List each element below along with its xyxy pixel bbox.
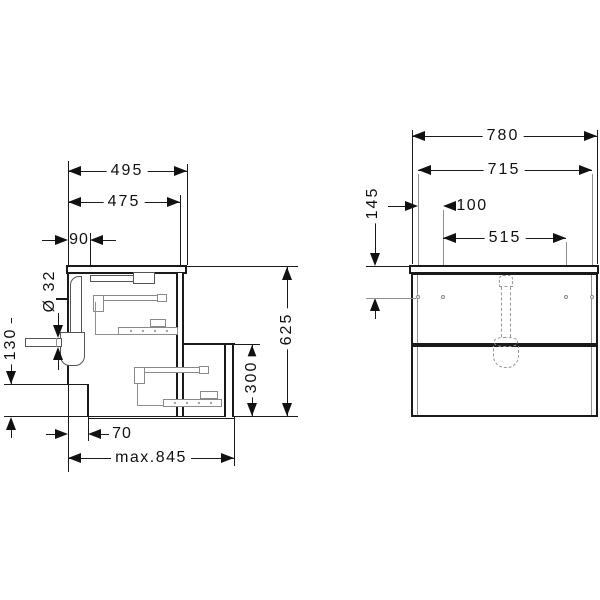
dim-100-label: 100 [456, 197, 487, 215]
mount-hole [564, 295, 568, 299]
dim-300-label: 300 [243, 357, 261, 398]
lower-drawer-bottom-rail [163, 399, 222, 407]
upper-drawer-bottom-rail [118, 327, 178, 335]
mount-hole [590, 295, 594, 299]
ext-line-145-bottom [366, 298, 416, 299]
ext-line-475-right [180, 195, 181, 265]
dim-arrow [412, 131, 425, 141]
dim-100-tail-left [388, 206, 405, 207]
dim-715-label: 715 [484, 161, 525, 179]
dim-90-tail-left [42, 240, 56, 241]
dim-32-label: Ø 32 [41, 270, 59, 313]
dim-arrow [370, 298, 380, 311]
upper-drawer-rail-end [157, 294, 167, 302]
dim-90-tail-right [103, 240, 116, 241]
dim-130-label: 130 [2, 324, 20, 365]
upper-drawer-bracket [150, 319, 166, 327]
dim-arrow [221, 453, 234, 463]
dim-arrow [88, 429, 101, 439]
siphon-cup-dashed [493, 346, 519, 368]
technical-drawing: 495 475 90 Ø 32 130 625 300 70 max.845 [0, 0, 600, 600]
siphon-pipe-dashed [501, 287, 511, 337]
dim-arrow [90, 235, 103, 245]
dim-70-label: 70 [112, 425, 132, 443]
dim-475-label: 475 [104, 193, 145, 211]
dim-32-tail-bottom [58, 360, 59, 370]
drain-outlet-joint [56, 338, 57, 347]
dim-arrow [6, 371, 16, 384]
lower-drawer-bracket [200, 391, 218, 399]
dim-arrow [174, 166, 187, 176]
side-front-panel [176, 273, 184, 417]
dim-130-tail-bottom [11, 430, 12, 438]
dim-arrow [6, 417, 16, 430]
dim-arrow [68, 453, 81, 463]
lower-drawer-rail-cap [134, 367, 145, 384]
dim-145-tail-bottom [375, 311, 376, 319]
mount-hole [441, 295, 445, 299]
dim-arrow [405, 201, 418, 211]
dim-arrow [55, 429, 68, 439]
cabinet-bottom-line [88, 418, 235, 419]
dim-arrow [553, 233, 566, 243]
dim-arrow [584, 131, 597, 141]
ext-line-780-right [597, 130, 598, 264]
dim-arrow [418, 165, 431, 175]
dim-arrow [55, 235, 68, 245]
ext-line-145-top [366, 266, 411, 267]
recess-side-line [87, 384, 89, 417]
dim-70-tail-right [101, 434, 109, 435]
dim-arrow [443, 201, 456, 211]
drain-flange [133, 272, 155, 284]
side-back-panel [67, 273, 69, 385]
dim-780-label: 780 [483, 127, 524, 145]
dim-arrow [282, 403, 292, 416]
lower-drawer-rail [134, 367, 208, 373]
dim-arrow [53, 325, 63, 338]
dim-arrow [53, 347, 63, 360]
lower-drawer-back [137, 383, 138, 405]
siphon-flange-dashed [499, 275, 513, 287]
dim-arrow [282, 267, 292, 280]
drain-horizontal-pipe [90, 275, 134, 282]
dim-32-tail-top [58, 313, 59, 325]
ext-line-845-right [234, 417, 235, 466]
ext-line-780-left [412, 130, 413, 264]
ext-line-495-right [187, 164, 188, 265]
dim-495-label: 495 [107, 162, 148, 180]
mount-hole [416, 295, 420, 299]
dim-arrow [68, 197, 81, 207]
dim-arrow [247, 403, 257, 416]
dim-625-label: 625 [278, 309, 296, 350]
dim-145-label: 145 [364, 183, 382, 224]
dim-arrow [579, 165, 592, 175]
side-countertop [66, 265, 187, 274]
dim-arrow [167, 197, 180, 207]
dim-90-label: 90 [69, 231, 89, 249]
recess-top-line [4, 384, 88, 385]
dim-515-label: 515 [485, 229, 526, 247]
lower-drawer-rail-end [199, 366, 209, 374]
dim-arrow [370, 253, 380, 266]
drain-elbow-pipe [70, 276, 82, 338]
dim-arrow [68, 166, 81, 176]
drawer-front-panel [224, 345, 234, 417]
upper-drawer-back [95, 302, 96, 334]
bottom-ext-line [4, 416, 298, 417]
drain-trap [60, 332, 85, 366]
dim-845-label: max.845 [111, 449, 191, 467]
dim-arrow [443, 233, 456, 243]
